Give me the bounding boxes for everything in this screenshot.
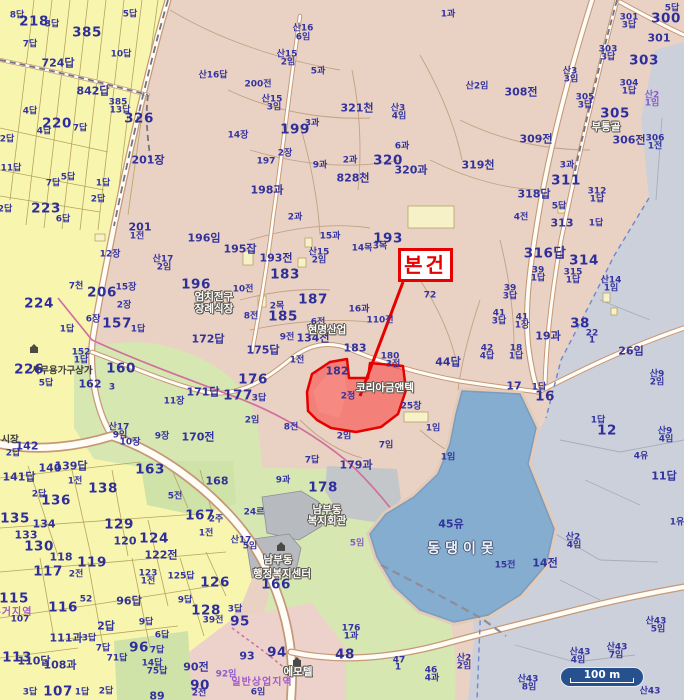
subject-property-text: 본건 xyxy=(404,255,447,275)
scale-bar-rule xyxy=(570,682,634,683)
map-canvas[interactable]: 8답2183답5답3857답724답10답842답38513답3262204답4… xyxy=(0,0,684,700)
map-geometry xyxy=(0,0,684,700)
scale-bar-tick xyxy=(570,678,571,683)
scale-bar: 100 m xyxy=(560,667,644,687)
green-patch xyxy=(114,631,192,700)
subject-property-label: 본건 xyxy=(398,248,453,282)
scale-bar-tick xyxy=(633,678,634,683)
scale-bar-label: 100 m xyxy=(561,670,643,681)
